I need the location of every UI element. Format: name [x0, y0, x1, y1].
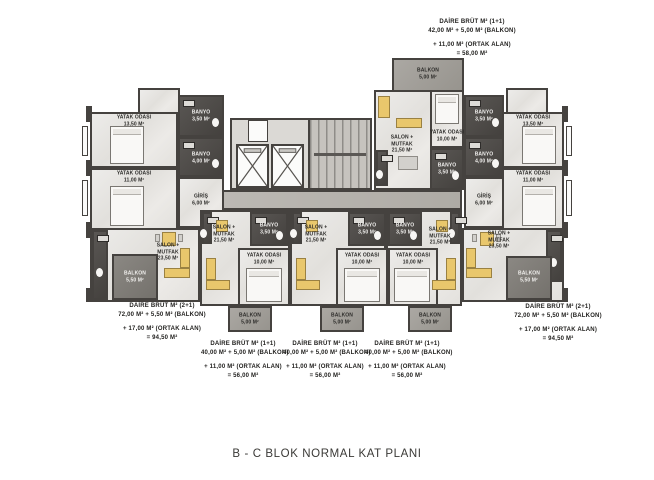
chair-furniture — [178, 234, 183, 242]
annotation-line: DAİRE BRÜT M² (1+1) — [382, 18, 562, 27]
bed-furniture — [522, 186, 556, 226]
annotation-line: + 11,00 M² (ORTAK ALAN) — [283, 363, 367, 372]
annotation-line: + 11,00 M² (ORTAK ALAN) — [382, 41, 562, 50]
room-area: 3,50 M² — [438, 169, 457, 176]
room-name: YATAK ODASI — [117, 171, 151, 178]
stair-rail — [314, 153, 366, 156]
label-leftwing-entry: GİRİŞ 6,00 M² — [192, 194, 210, 207]
room-area: 23,50 M² — [488, 243, 511, 250]
annotation-top-unit: DAİRE BRÜT M² (1+1) 42,00 M² + 5,00 M² (… — [382, 18, 562, 59]
room-name: SALON + — [488, 230, 511, 237]
room-name: SALON + — [213, 224, 236, 231]
elevator-x-glyph — [273, 146, 302, 186]
room-name: BANYO — [192, 152, 211, 159]
room-name: SALON + — [305, 224, 328, 231]
label-rightwing-entry: GİRİŞ 6,00 M² — [475, 194, 493, 207]
sofa-furniture — [446, 258, 456, 280]
room-name: YATAK ODASI — [516, 115, 550, 122]
label-rightwing-bathroom-2: BANYO 4,00 M² — [475, 152, 494, 165]
room-name: YATAK ODASI — [396, 253, 430, 260]
annotation-mid-1: DAİRE BRÜT M² (1+1) 40,00 M² + 5,00 M² (… — [201, 340, 285, 381]
annotation-line: 40,00 M² + 5,00 M² (BALKON) — [201, 349, 285, 358]
window — [82, 126, 88, 156]
annotation-line: DAİRE BRÜT M² (2+1) — [468, 303, 648, 312]
annotation-line: DAİRE BRÜT M² (2+1) — [72, 302, 252, 311]
room-area: 3,50 M² — [192, 116, 211, 123]
label-topunit-bedroom: YATAK ODASI 10,00 M² — [430, 130, 464, 143]
label-unit2-bathroom: BANYO 3,50 M² — [358, 223, 377, 236]
table-furniture — [398, 156, 418, 170]
room-area: 5,50 M² — [124, 277, 146, 284]
sofa-furniture — [466, 268, 492, 278]
unit3-kitchen-counter — [450, 212, 460, 244]
sofa-furniture — [396, 118, 422, 128]
wardrobe-furniture — [378, 96, 390, 118]
annotation-line: DAİRE BRÜT M² (1+1) — [365, 340, 449, 349]
bed-furniture — [394, 268, 430, 302]
room-name: SALON + — [429, 226, 452, 233]
label-rightwing-balcony: BALKON 5,50 M² — [518, 271, 540, 284]
label-leftwing-salon: SALON + MUTFAK 23,50 M² — [157, 242, 180, 262]
room-area: 13,50 M² — [516, 121, 550, 128]
wall-pier — [86, 106, 92, 122]
shaft-window — [248, 120, 268, 142]
window — [82, 180, 88, 216]
elevator-x-glyph — [238, 146, 267, 186]
room-name: SALON + — [157, 242, 180, 249]
label-unit3-balcony: BALKON 5,00 M² — [419, 313, 441, 326]
room-area: 10,00 M² — [247, 259, 281, 266]
sofa-furniture — [466, 248, 476, 268]
room-name: BALKON — [417, 68, 439, 75]
room-area: 10,00 M² — [345, 259, 379, 266]
label-rightwing-salon: SALON + MUTFAK 23,50 M² — [488, 230, 511, 250]
room-area: 4,00 M² — [475, 158, 494, 165]
annotation-bottom-right: DAİRE BRÜT M² (2+1) 72,00 M² + 5,50 M² (… — [468, 303, 648, 344]
label-topunit-salon: SALON + MUTFAK 21,50 M² — [391, 134, 414, 154]
sofa-furniture — [164, 268, 190, 278]
wall-pier — [562, 106, 568, 122]
room-area: 3,50 M² — [475, 116, 494, 123]
room-area: 5,00 M² — [331, 319, 353, 326]
wall-pier — [562, 160, 568, 176]
annotation-line: + 17,00 M² (ORTAK ALAN) — [72, 325, 252, 334]
drawing-title: B - C BLOK NORMAL KAT PLANI — [0, 448, 654, 460]
bed-furniture — [110, 126, 144, 164]
wall-pier — [86, 222, 92, 238]
room-area: 6,00 M² — [475, 200, 493, 207]
room-name: YATAK ODASI — [516, 171, 550, 178]
annotation-line: DAİRE BRÜT M² (1+1) — [201, 340, 285, 349]
sofa-furniture — [180, 248, 190, 268]
elevator-right-icon — [271, 144, 304, 188]
label-unit1-bedroom: YATAK ODASI 10,00 M² — [247, 253, 281, 266]
room-area: 3,50 M² — [358, 229, 377, 236]
label-unit2-balcony: BALKON 5,00 M² — [331, 313, 353, 326]
room-area: 5,00 M² — [417, 74, 439, 81]
annotation-line: = 94,50 M² — [468, 335, 648, 344]
label-leftwing-balcony: BALKON 5,50 M² — [124, 271, 146, 284]
label-rightwing-bedroom-1: YATAK ODASI 13,50 M² — [516, 115, 550, 128]
room-name: GİRİŞ — [192, 194, 210, 201]
bed-furniture — [246, 268, 282, 302]
room-area: 21,50 M² — [305, 237, 328, 244]
annotation-mid-3: DAİRE BRÜT M² (1+1) 40,00 M² + 5,00 M² (… — [365, 340, 449, 381]
bed-furniture — [344, 268, 380, 302]
label-unit1-salon: SALON + MUTFAK 21,50 M² — [213, 224, 236, 244]
room-area: 21,50 M² — [391, 147, 414, 154]
room-name: GİRİŞ — [475, 194, 493, 201]
annotation-line: DAİRE BRÜT M² (1+1) — [283, 340, 367, 349]
staircase — [308, 118, 372, 190]
room-name: BANYO — [475, 110, 494, 117]
room-name: YATAK ODASI — [117, 115, 151, 122]
leftwing-kitchen-counter — [92, 230, 108, 300]
room-name: BALKON — [518, 271, 540, 278]
label-leftwing-bedroom-2: YATAK ODASI 11,00 M² — [117, 171, 151, 184]
room-name: YATAK ODASI — [345, 253, 379, 260]
chair-furniture — [472, 234, 477, 242]
window — [566, 126, 572, 156]
label-unit1-bathroom: BANYO 3,50 M² — [260, 223, 279, 236]
label-unit2-bedroom: YATAK ODASI 10,00 M² — [345, 253, 379, 266]
wall-pier — [86, 160, 92, 176]
sofa-furniture — [432, 280, 456, 290]
wall-pier — [562, 222, 568, 238]
room-name: BALKON — [419, 313, 441, 320]
room-name: BANYO — [358, 223, 377, 230]
label-topunit-bathroom: BANYO 3,50 M² — [438, 163, 457, 176]
room-name: YATAK ODASI — [430, 130, 464, 137]
label-leftwing-bedroom-1: YATAK ODASI 13,50 M² — [117, 115, 151, 128]
room-area: 10,00 M² — [396, 259, 430, 266]
unit2-kitchen-counter — [292, 212, 302, 244]
room-area: 21,50 M² — [429, 239, 452, 246]
window — [566, 180, 572, 216]
label-topunit-balcony: BALKON 5,00 M² — [417, 68, 439, 81]
label-unit3-salon: SALON + MUTFAK 21,50 M² — [429, 226, 452, 246]
room-area: 5,00 M² — [419, 319, 441, 326]
label-leftwing-bathroom-1: BANYO 3,50 M² — [192, 110, 211, 123]
room-name: YATAK ODASI — [247, 253, 281, 260]
room-name: BANYO — [396, 223, 415, 230]
label-rightwing-bathroom-1: BANYO 3,50 M² — [475, 110, 494, 123]
topunit-kitchen-counter — [376, 150, 388, 186]
room-area: 23,50 M² — [157, 255, 180, 262]
annotation-line: = 56,00 M² — [201, 372, 285, 381]
room-area: 10,00 M² — [430, 136, 464, 143]
annotation-line: + 17,00 M² (ORTAK ALAN) — [468, 326, 648, 335]
bed-furniture — [435, 94, 459, 124]
room-area: 6,00 M² — [192, 200, 210, 207]
room-area: 3,50 M² — [260, 229, 279, 236]
bed-furniture — [110, 186, 144, 226]
room-name: BANYO — [438, 163, 457, 170]
label-leftwing-bathroom-2: BANYO 4,00 M² — [192, 152, 211, 165]
annotation-line: = 56,00 M² — [365, 372, 449, 381]
room-name: SALON + — [391, 134, 414, 141]
annotation-line: 42,00 M² + 5,00 M² (BALKON) — [382, 27, 562, 36]
chair-furniture — [155, 234, 160, 242]
label-rightwing-bedroom-2: YATAK ODASI 11,00 M² — [516, 171, 550, 184]
label-unit2-salon: SALON + MUTFAK 21,50 M² — [305, 224, 328, 244]
annotation-line: 72,00 M² + 5,50 M² (BALKON) — [72, 311, 252, 320]
annotation-line: 72,00 M² + 5,50 M² (BALKON) — [468, 312, 648, 321]
sofa-furniture — [296, 280, 320, 290]
bed-furniture — [522, 126, 556, 164]
annotation-line: 40,00 M² + 5,00 M² (BALKON) — [365, 349, 449, 358]
label-unit3-bathroom: BANYO 3,50 M² — [396, 223, 415, 236]
annotation-mid-2: DAİRE BRÜT M² (1+1) 40,00 M² + 5,00 M² (… — [283, 340, 367, 381]
annotation-line: = 58,00 M² — [382, 50, 562, 59]
room-name: BANYO — [475, 152, 494, 159]
wall-pier — [562, 288, 568, 302]
unit1-kitchen-counter — [202, 212, 212, 244]
room-area: 4,00 M² — [192, 158, 211, 165]
room-area: 13,50 M² — [117, 121, 151, 128]
room-area: 21,50 M² — [213, 237, 236, 244]
room-name: BANYO — [260, 223, 279, 230]
wall-pier — [86, 288, 92, 302]
room-name: BANYO — [192, 110, 211, 117]
room-name: BALKON — [331, 313, 353, 320]
room-name: BALKON — [124, 271, 146, 278]
room-area: 3,50 M² — [396, 229, 415, 236]
elevator-left-icon — [236, 144, 269, 188]
label-unit3-bedroom: YATAK ODASI 10,00 M² — [396, 253, 430, 266]
sofa-furniture — [296, 258, 306, 280]
room-area: 5,50 M² — [518, 277, 540, 284]
annotation-line: + 11,00 M² (ORTAK ALAN) — [201, 363, 285, 372]
annotation-line: + 11,00 M² (ORTAK ALAN) — [365, 363, 449, 372]
annotation-line: = 56,00 M² — [283, 372, 367, 381]
floor-plan-canvas: DAİRE BRÜT M² (1+1) 42,00 M² + 5,00 M² (… — [0, 0, 654, 480]
room-area: 11,00 M² — [516, 177, 550, 184]
sofa-furniture — [206, 258, 216, 280]
room-area: 11,00 M² — [117, 177, 151, 184]
sofa-furniture — [206, 280, 230, 290]
corridor — [222, 190, 462, 210]
annotation-line: 40,00 M² + 5,00 M² (BALKON) — [283, 349, 367, 358]
annotation-bottom-left: DAİRE BRÜT M² (2+1) 72,00 M² + 5,50 M² (… — [72, 302, 252, 343]
